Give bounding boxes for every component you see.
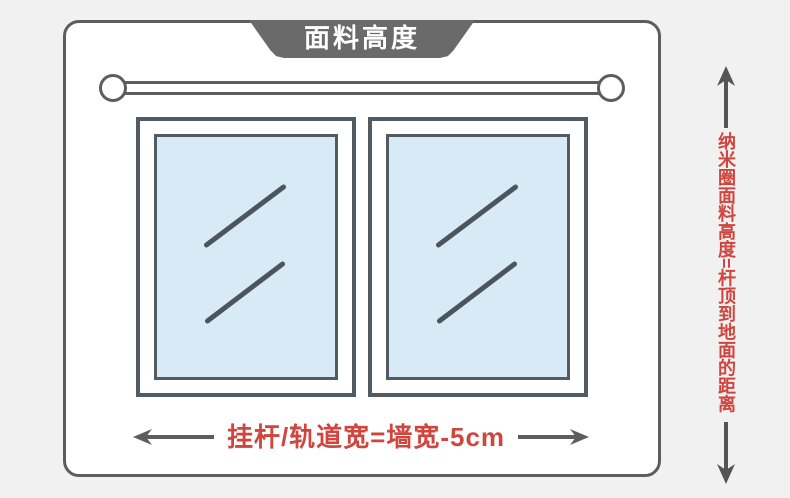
glass-reflection-lines	[389, 137, 567, 377]
fabric-height-banner: 面料高度	[249, 20, 475, 58]
rod-finial-left	[99, 74, 127, 102]
window-left-glass	[154, 134, 338, 380]
arrow-up-icon	[713, 66, 739, 128]
glass-reflection-lines	[157, 137, 335, 377]
window-left	[136, 117, 356, 397]
rod-width-measure: 挂杆/轨道宽=墙宽-5cm	[132, 419, 590, 455]
rod-width-label: 挂杆/轨道宽=墙宽-5cm	[227, 424, 505, 450]
fabric-height-annotation-label: 纳米圈面料高度=杆顶到地面的距离	[717, 132, 735, 418]
diagram-canvas: 面料高度	[0, 0, 790, 498]
arrow-left-icon	[132, 427, 214, 447]
curtain-rod	[113, 81, 611, 95]
wall-outline: 面料高度	[63, 20, 661, 477]
window-right-glass	[386, 134, 570, 380]
arrow-right-icon	[518, 427, 590, 447]
fabric-height-annotation: 纳米圈面料高度=杆顶到地面的距离	[702, 66, 750, 484]
fabric-height-banner-label: 面料高度	[304, 25, 420, 53]
rod-finial-right	[597, 74, 625, 102]
window-right	[368, 117, 588, 397]
arrow-down-icon	[713, 422, 739, 484]
